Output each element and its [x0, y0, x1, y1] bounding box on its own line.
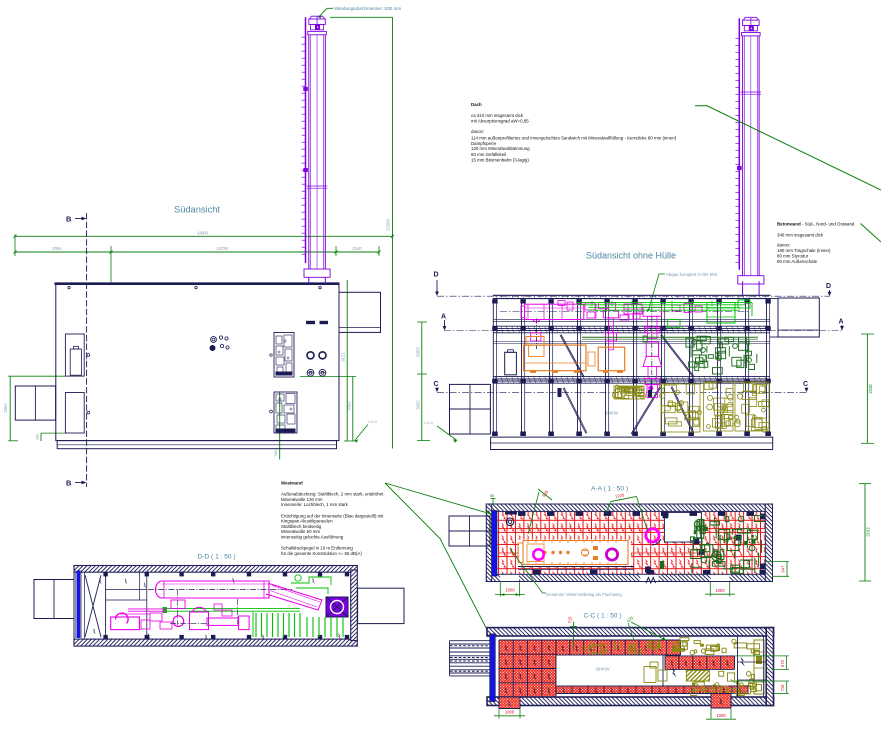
svg-text:90: 90	[490, 494, 494, 498]
svg-text:Mündungsdurchmesser: 630 mm: Mündungsdurchmesser: 630 mm	[334, 6, 401, 11]
svg-text:Abgas komplett in DN 500: Abgas komplett in DN 500	[666, 272, 718, 277]
svg-text:Schalldruckpegel in 10 m Entfe: Schalldruckpegel in 10 m Entfernung	[281, 546, 353, 551]
svg-text:647: 647	[780, 565, 785, 573]
svg-text:Gesamter Gitterrostbelag als F: Gesamter Gitterrostbelag als Fluchtweg	[546, 592, 622, 597]
svg-text:C: C	[434, 381, 439, 388]
svg-text:14726: 14726	[216, 246, 228, 251]
svg-text:± 0,0: ± 0,0	[368, 419, 378, 424]
svg-text:BHKW: BHKW	[605, 411, 619, 416]
svg-text:2084: 2084	[52, 246, 62, 251]
svg-text:für die gesamte Konstruktion <: für die gesamte Konstruktion <= 55 dB(A)	[281, 551, 362, 556]
svg-text:2140: 2140	[352, 246, 362, 251]
svg-text:1000: 1000	[716, 713, 726, 718]
svg-text:A: A	[441, 314, 446, 321]
svg-text:360: 360	[274, 450, 278, 456]
svg-text:3362: 3362	[415, 400, 420, 410]
svg-text:± 0,0: ± 0,0	[424, 420, 434, 425]
svg-text:180 mm Tragschale (innen): 180 mm Tragschale (innen)	[777, 248, 831, 253]
svg-text:mit Absorptionsgrad aW=0,85: mit Absorptionsgrad aW=0,85	[471, 118, 529, 123]
svg-text:719: 719	[780, 684, 785, 692]
svg-text:2102: 2102	[866, 527, 871, 537]
svg-text:Mineralwolle 120 mm: Mineralwolle 120 mm	[281, 497, 323, 502]
svg-text:innenseitig gelochte Ausführun: innenseitig gelochte Ausführung	[281, 535, 344, 540]
svg-text:380: 380	[36, 434, 40, 440]
svg-text:22000: 22000	[386, 219, 391, 231]
svg-text:Mineralwolle 60 mm: Mineralwolle 60 mm	[281, 529, 320, 534]
svg-text:3362: 3362	[3, 403, 8, 413]
svg-text:davon:: davon:	[777, 243, 790, 248]
svg-text:Innenseite: Lochblech, 1 mm st: Innenseite: Lochblech, 1 mm stark	[281, 502, 349, 507]
svg-text:ca 310 mm insgesamt dick: ca 310 mm insgesamt dick	[471, 113, 524, 118]
svg-text:Südansicht: Südansicht	[174, 205, 220, 215]
svg-text:Betonwand - Süd-, Nord- und Os: Betonwand - Süd-, Nord- und Ostwand	[777, 222, 855, 227]
svg-text:B: B	[66, 215, 72, 224]
svg-text:Ertüchtigung auf der Innenseit: Ertüchtigung auf der Innenseite (Blau da…	[281, 513, 384, 518]
svg-text:D: D	[826, 283, 831, 290]
svg-text:3362: 3362	[346, 401, 351, 411]
svg-text:5953: 5953	[415, 347, 420, 357]
svg-text:Kingspan Akustikpaneelen: Kingspan Akustikpaneelen	[281, 519, 333, 524]
svg-text:80 mm Styrodur: 80 mm Styrodur	[777, 254, 809, 259]
svg-text:Westwand: Westwand	[281, 481, 303, 486]
svg-text:120 mm Mineralwolldämmung: 120 mm Mineralwolldämmung	[471, 146, 530, 151]
svg-text:60 mm Gefällekeil: 60 mm Gefällekeil	[471, 152, 506, 157]
svg-text:2248: 2248	[868, 384, 873, 394]
svg-text:B: B	[66, 479, 72, 488]
svg-text:715: 715	[568, 616, 573, 624]
svg-text:8121: 8121	[341, 352, 346, 362]
svg-text:A-A ( 1 : 50 ): A-A ( 1 : 50 )	[591, 486, 628, 493]
svg-text:Südansicht ohne Hülle: Südansicht ohne Hülle	[586, 251, 676, 261]
svg-text:A: A	[839, 319, 844, 326]
svg-text:670: 670	[780, 659, 785, 667]
svg-text:Dampfsperre: Dampfsperre	[471, 141, 497, 146]
svg-text:Dach: Dach	[471, 102, 482, 107]
svg-text:114 mm außenprofiliertes und i: 114 mm außenprofiliertes und innengeloch…	[471, 136, 677, 141]
svg-text:davon:: davon:	[471, 129, 484, 134]
svg-text:18941: 18941	[197, 230, 209, 235]
svg-text:80 mm Außenschale: 80 mm Außenschale	[777, 259, 818, 264]
svg-text:C-C ( 1 : 50 ): C-C ( 1 : 50 )	[584, 613, 622, 620]
svg-text:1000: 1000	[505, 588, 515, 593]
svg-text:1000: 1000	[715, 588, 725, 593]
svg-text:D-D ( 1 : 50 ): D-D ( 1 : 50 )	[198, 554, 236, 561]
svg-text:1000: 1000	[505, 710, 515, 715]
svg-text:D: D	[434, 272, 439, 279]
svg-text:BHKW: BHKW	[596, 667, 610, 672]
svg-text:15 mm Bitumenbahn (3-lagig): 15 mm Bitumenbahn (3-lagig)	[471, 158, 529, 163]
svg-text:Stahlblech beidseitig: Stahlblech beidseitig	[281, 524, 322, 529]
svg-text:Außenabdeckung: Stahlblech, 2: Außenabdeckung: Stahlblech, 2 mm stark, …	[281, 492, 384, 497]
svg-text:340 mm insgesamt dick: 340 mm insgesamt dick	[777, 233, 824, 238]
svg-text:C: C	[803, 381, 808, 388]
